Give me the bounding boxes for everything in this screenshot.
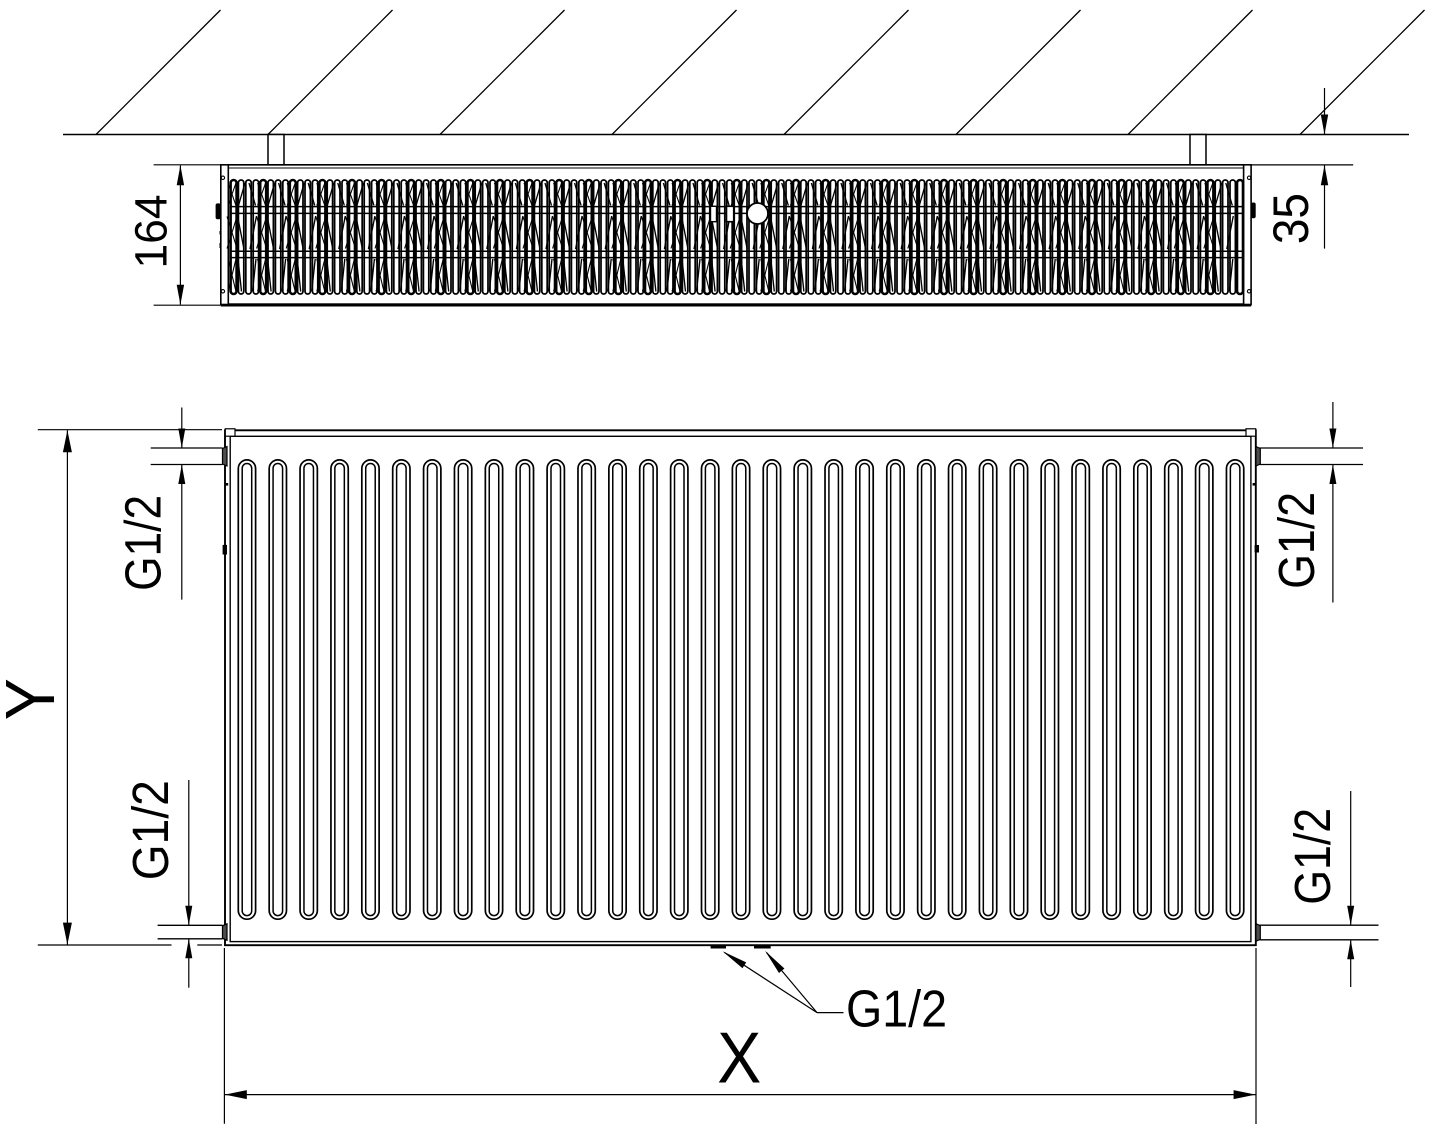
svg-text:G1/2: G1/2 — [122, 780, 179, 880]
svg-text:G1/2: G1/2 — [846, 981, 947, 1039]
svg-text:G1/2: G1/2 — [114, 495, 171, 591]
svg-text:Y: Y — [0, 678, 69, 720]
svg-text:164: 164 — [125, 195, 176, 269]
svg-text:G1/2: G1/2 — [1268, 492, 1325, 589]
svg-text:G1/2: G1/2 — [1284, 808, 1341, 905]
svg-text:X: X — [717, 1019, 761, 1099]
svg-text:35: 35 — [1263, 193, 1319, 244]
